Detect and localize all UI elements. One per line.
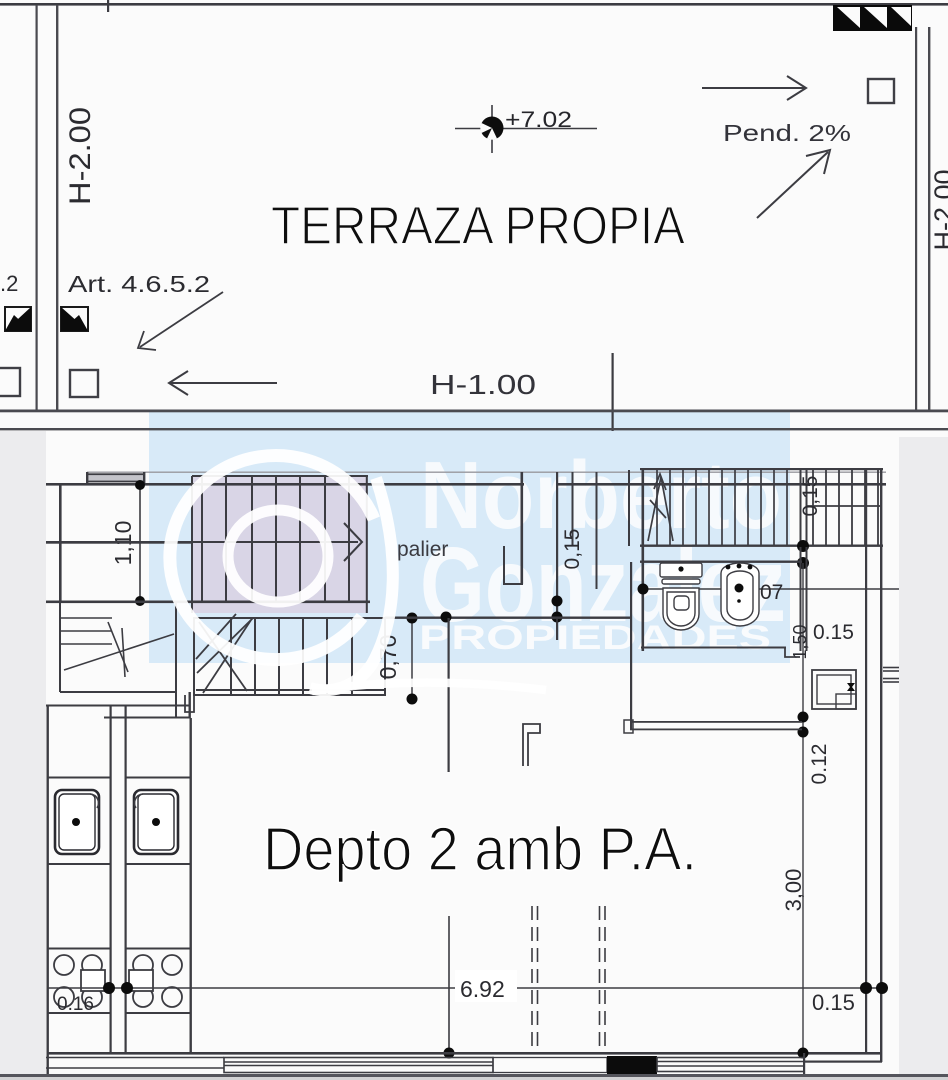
svg-text:07: 07 — [760, 581, 783, 604]
svg-text:1,50: 1,50 — [790, 624, 810, 659]
svg-text:0,15: 0,15 — [799, 476, 822, 517]
svg-text:3,00: 3,00 — [781, 869, 806, 912]
svg-text:H-1.00: H-1.00 — [430, 369, 536, 400]
svg-text:0,15: 0,15 — [561, 529, 584, 570]
svg-text:Pend. 2%: Pend. 2% — [723, 120, 851, 146]
svg-text:0.12: 0.12 — [808, 744, 831, 785]
svg-text:0.16: 0.16 — [57, 994, 94, 1015]
svg-text:Depto 2 amb P.A.: Depto 2 amb P.A. — [263, 815, 697, 883]
svg-text:0.15: 0.15 — [812, 990, 855, 1015]
svg-text:TERRAZA PROPIA: TERRAZA PROPIA — [271, 196, 685, 256]
svg-text:PROPIEDADES: PROPIEDADES — [419, 619, 771, 657]
svg-text:H-2.00: H-2.00 — [64, 107, 97, 205]
svg-text:+7.02: +7.02 — [505, 107, 572, 132]
svg-text:.2: .2 — [0, 271, 18, 296]
svg-text:0.15: 0.15 — [813, 621, 854, 644]
svg-text:H-2.00: H-2.00 — [929, 169, 948, 250]
svg-text:palier: palier — [397, 538, 448, 561]
svg-text:6.92: 6.92 — [460, 976, 505, 1002]
svg-text:Art. 4.6.5.2: Art. 4.6.5.2 — [68, 271, 210, 297]
